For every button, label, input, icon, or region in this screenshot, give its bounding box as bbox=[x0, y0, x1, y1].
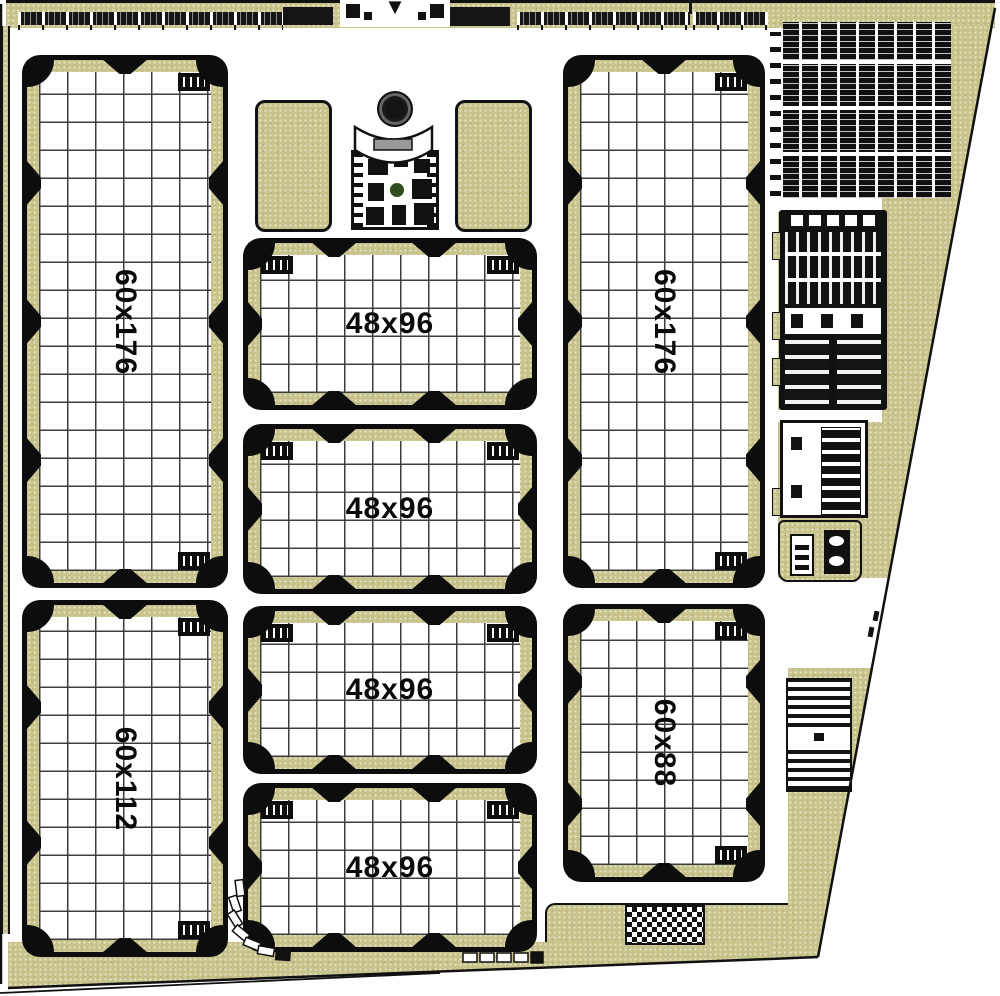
planter-tab bbox=[772, 358, 781, 386]
gate-post bbox=[430, 4, 444, 18]
parking-row bbox=[18, 12, 283, 25]
parking-row bbox=[693, 12, 768, 25]
office-restroom-building bbox=[351, 150, 439, 230]
site-plan: ▼ bbox=[0, 0, 1000, 996]
building-entry-row bbox=[785, 215, 881, 226]
growing-field-60x112-west: 60x112 bbox=[22, 600, 228, 957]
parking-row bbox=[517, 12, 690, 25]
main-entrance-gate: ▼ bbox=[340, 0, 450, 27]
display-pad-west bbox=[255, 100, 332, 232]
field-size-label: 60x112 bbox=[108, 726, 142, 830]
propagation-aisle bbox=[788, 731, 850, 745]
entrance-arrow-icon: ▼ bbox=[384, 0, 406, 18]
fixture bbox=[791, 437, 802, 450]
support-building bbox=[780, 420, 868, 518]
perimeter-landscape-west bbox=[0, 26, 10, 934]
display-pad-east bbox=[455, 100, 532, 232]
field-size-label: 48x96 bbox=[346, 492, 434, 526]
band-divider bbox=[689, 0, 692, 14]
feature-tree bbox=[377, 91, 413, 127]
loading-dock-comb bbox=[770, 32, 781, 196]
shelving-area bbox=[785, 232, 881, 304]
gate-post bbox=[346, 4, 360, 18]
hatched-pad bbox=[625, 905, 705, 945]
growing-field-48x96-1: 48x96 bbox=[243, 238, 537, 410]
room-block bbox=[366, 207, 384, 225]
planter-tab bbox=[772, 232, 781, 260]
center-aisle bbox=[785, 308, 881, 334]
tank-port bbox=[829, 556, 844, 566]
fixture bbox=[791, 485, 802, 498]
room-block bbox=[368, 159, 388, 175]
field-size-label: 60x176 bbox=[108, 268, 142, 374]
aisle-fixture bbox=[814, 733, 824, 741]
canopy-steps bbox=[374, 139, 412, 150]
room-block bbox=[368, 183, 384, 201]
field-size-label: 48x96 bbox=[346, 673, 434, 707]
growing-field-60x88-east: 60x88 bbox=[563, 604, 765, 882]
room-block bbox=[412, 179, 432, 199]
growing-field-48x96-4: 48x96 bbox=[243, 783, 537, 952]
growing-field-60x176-east: 60x176 bbox=[563, 55, 765, 588]
parked-vehicle-group bbox=[283, 7, 333, 25]
tank-fixture bbox=[824, 530, 850, 574]
room-block bbox=[392, 205, 406, 225]
parked-vehicle-group bbox=[448, 7, 510, 26]
container-yard bbox=[783, 22, 951, 198]
field-size-label: 60x176 bbox=[647, 268, 681, 374]
room-block bbox=[394, 157, 408, 167]
utility-fixture bbox=[790, 534, 814, 576]
field-size-label: 48x96 bbox=[346, 851, 434, 885]
field-size-label: 60x88 bbox=[647, 699, 681, 787]
growing-field-48x96-2: 48x96 bbox=[243, 424, 537, 594]
stock-area bbox=[785, 338, 881, 404]
growing-field-48x96-3: 48x96 bbox=[243, 606, 537, 774]
headhouse-building bbox=[779, 210, 887, 410]
utility-pad bbox=[778, 520, 862, 582]
gate-post-small bbox=[418, 12, 426, 20]
field-size-label: 48x96 bbox=[346, 307, 434, 341]
gate-post-small bbox=[364, 12, 372, 20]
room-block bbox=[414, 203, 434, 225]
growing-field-60x176-west: 60x176 bbox=[22, 55, 228, 588]
tank-port bbox=[829, 536, 844, 546]
planter-icon bbox=[390, 183, 404, 197]
room-block bbox=[414, 159, 430, 173]
planter-tab bbox=[772, 312, 781, 340]
equipment-bay bbox=[821, 427, 861, 515]
boundary-gate-marks bbox=[868, 611, 880, 638]
propagation-house bbox=[786, 678, 852, 792]
